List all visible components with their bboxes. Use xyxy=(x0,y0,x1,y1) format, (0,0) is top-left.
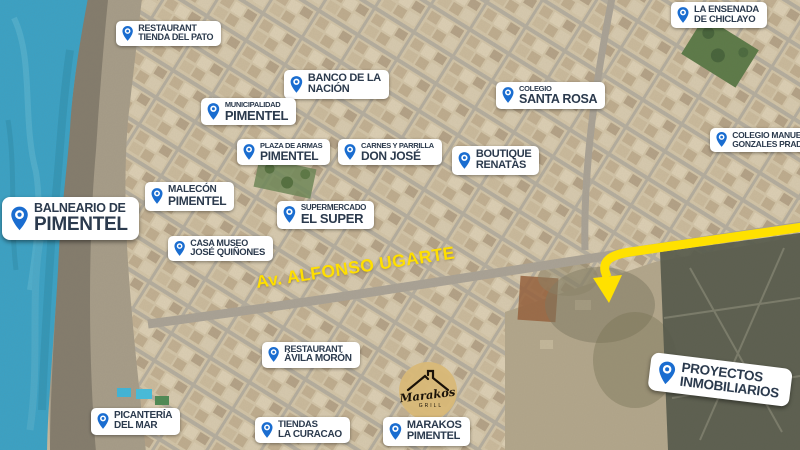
map-pin-icon xyxy=(173,240,186,257)
marker-label: CARNES Y PARRILLA DON JOSÉ xyxy=(361,142,434,162)
map-marker-malecon-pimentel: MALECÓN PIMENTEL xyxy=(145,182,234,211)
marker-label: PROYECTOS INMOBILIARIOS xyxy=(679,361,781,401)
map-pin-icon xyxy=(388,422,403,441)
marker-label: LA ENSENADA DE CHICLAYO xyxy=(694,5,759,25)
map-pin-icon xyxy=(242,143,256,161)
marker-label: PLAZA DE ARMAS PIMENTEL xyxy=(260,142,322,162)
marker-label: BALNEARIO DE PIMENTEL xyxy=(34,202,128,235)
map-marker-restaurant-avila-moron: RESTAURANT ÁVILA MORÓN xyxy=(262,342,360,368)
map-marker-colegio-manuel-gonzales-prada: COLEGIO MANUEL GONZALES PRADA xyxy=(710,128,800,152)
map-pin-icon xyxy=(267,346,280,363)
map-pin-icon xyxy=(260,421,274,439)
marker-label: RESTAURANT TIENDA DEL PATO xyxy=(138,24,213,43)
map-pin-icon xyxy=(289,75,304,94)
marker-label: PICANTERÍA DEL MAR xyxy=(114,411,172,432)
marker-label: SUPERMERCADO EL SUPER xyxy=(301,204,366,226)
map-pin-icon xyxy=(676,6,690,24)
marker-label: CASA MUSEO JOSÉ QUIÑONES xyxy=(190,239,265,258)
map-marker-supermercado-el-super: SUPERMERCADO EL SUPER xyxy=(277,201,374,229)
map-pin-icon xyxy=(96,412,110,430)
map-marker-balneario-de-pimentel: BALNEARIO DE PIMENTEL xyxy=(2,197,139,240)
marker-label: BANCO DE LA NACIÓN xyxy=(308,73,381,96)
map-marker-boutique-renatas: BOUTIQUE RENATÀS xyxy=(452,146,539,175)
map-pin-icon xyxy=(282,205,297,224)
map-marker-municipalidad-pimentel: MUNICIPALIDAD PIMENTEL xyxy=(201,98,296,125)
map-marker-marakos-pimentel: MARAKOS PIMENTEL xyxy=(383,417,470,446)
map-marker-restaurant-tienda-del-pato: RESTAURANT TIENDA DEL PATO xyxy=(116,21,221,46)
marker-label: MUNICIPALIDAD PIMENTEL xyxy=(225,101,288,122)
map-pin-icon xyxy=(501,86,515,104)
map-marker-casa-museo-jose-quinones: CASA MUSEO JOSÉ QUIÑONES xyxy=(168,236,273,261)
map-pin-icon xyxy=(457,151,472,170)
map-marker-plaza-de-armas-pimentel: PLAZA DE ARMAS PIMENTEL xyxy=(237,139,330,165)
map-marker-colegio-santa-rosa: COLEGIO SANTA ROSA xyxy=(496,82,605,109)
map-pin-icon xyxy=(715,131,728,148)
marker-label: RESTAURANT ÁVILA MORÓN xyxy=(284,345,351,365)
marakos-grill-logo: Marakos GRILL xyxy=(398,361,458,421)
marker-label: TIENDAS LA CURACAO xyxy=(278,420,342,440)
marker-label: COLEGIO SANTA ROSA xyxy=(519,85,597,106)
map-marker-tiendas-la-curacao: TIENDAS LA CURACAO xyxy=(255,417,350,443)
marker-label: COLEGIO MANUEL GONZALES PRADA xyxy=(732,131,800,149)
map-marker-la-ensenada-de-chiclayo: LA ENSENADA DE CHICLAYO xyxy=(671,2,767,28)
map-pin-icon xyxy=(655,359,678,387)
logo-subtitle: GRILL xyxy=(419,403,443,409)
map-marker-carnes-y-parrilla-don-jose: CARNES Y PARRILLA DON JOSÉ xyxy=(338,139,442,165)
marker-label: BOUTIQUE RENATÀS xyxy=(476,149,532,172)
map-marker-banco-de-la-nacion: BANCO DE LA NACIÓN xyxy=(284,70,389,99)
map-marker-picanteria-del-mar: PICANTERÍA DEL MAR xyxy=(91,408,180,435)
promo-map-stage: Av. ALFONSO UGARTE Marakos GRILL RESTAUR… xyxy=(0,0,800,450)
map-pin-icon xyxy=(150,187,164,205)
map-pin-icon xyxy=(206,102,221,121)
marker-label: MALECÓN PIMENTEL xyxy=(168,185,226,208)
map-pin-icon xyxy=(9,205,30,232)
map-pin-icon xyxy=(121,25,134,42)
map-pin-icon xyxy=(343,143,357,161)
marker-label: MARAKOS PIMENTEL xyxy=(407,420,462,443)
